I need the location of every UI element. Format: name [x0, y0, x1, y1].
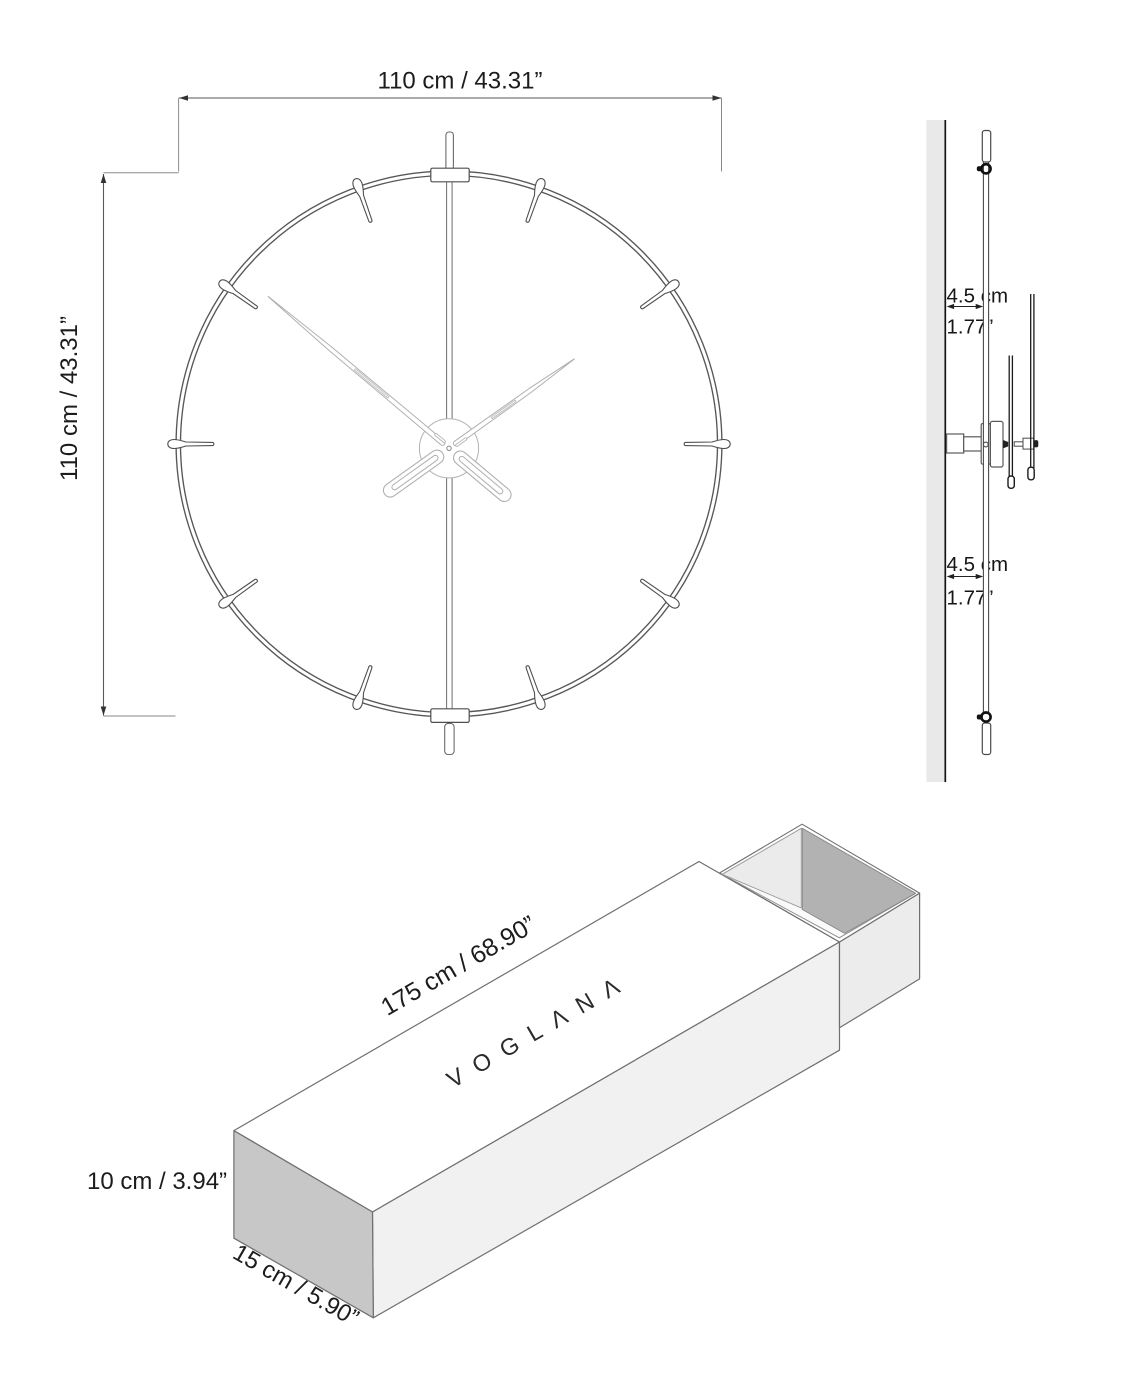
svg-text:4.5 cm: 4.5 cm: [947, 285, 1009, 308]
svg-text:4.5 cm: 4.5 cm: [947, 553, 1009, 576]
svg-text:10 cm / 3.94”: 10 cm / 3.94”: [87, 1168, 227, 1195]
svg-text:110 cm / 43.31”: 110 cm / 43.31”: [378, 68, 543, 95]
svg-text:110 cm / 43.31”: 110 cm / 43.31”: [56, 316, 83, 481]
